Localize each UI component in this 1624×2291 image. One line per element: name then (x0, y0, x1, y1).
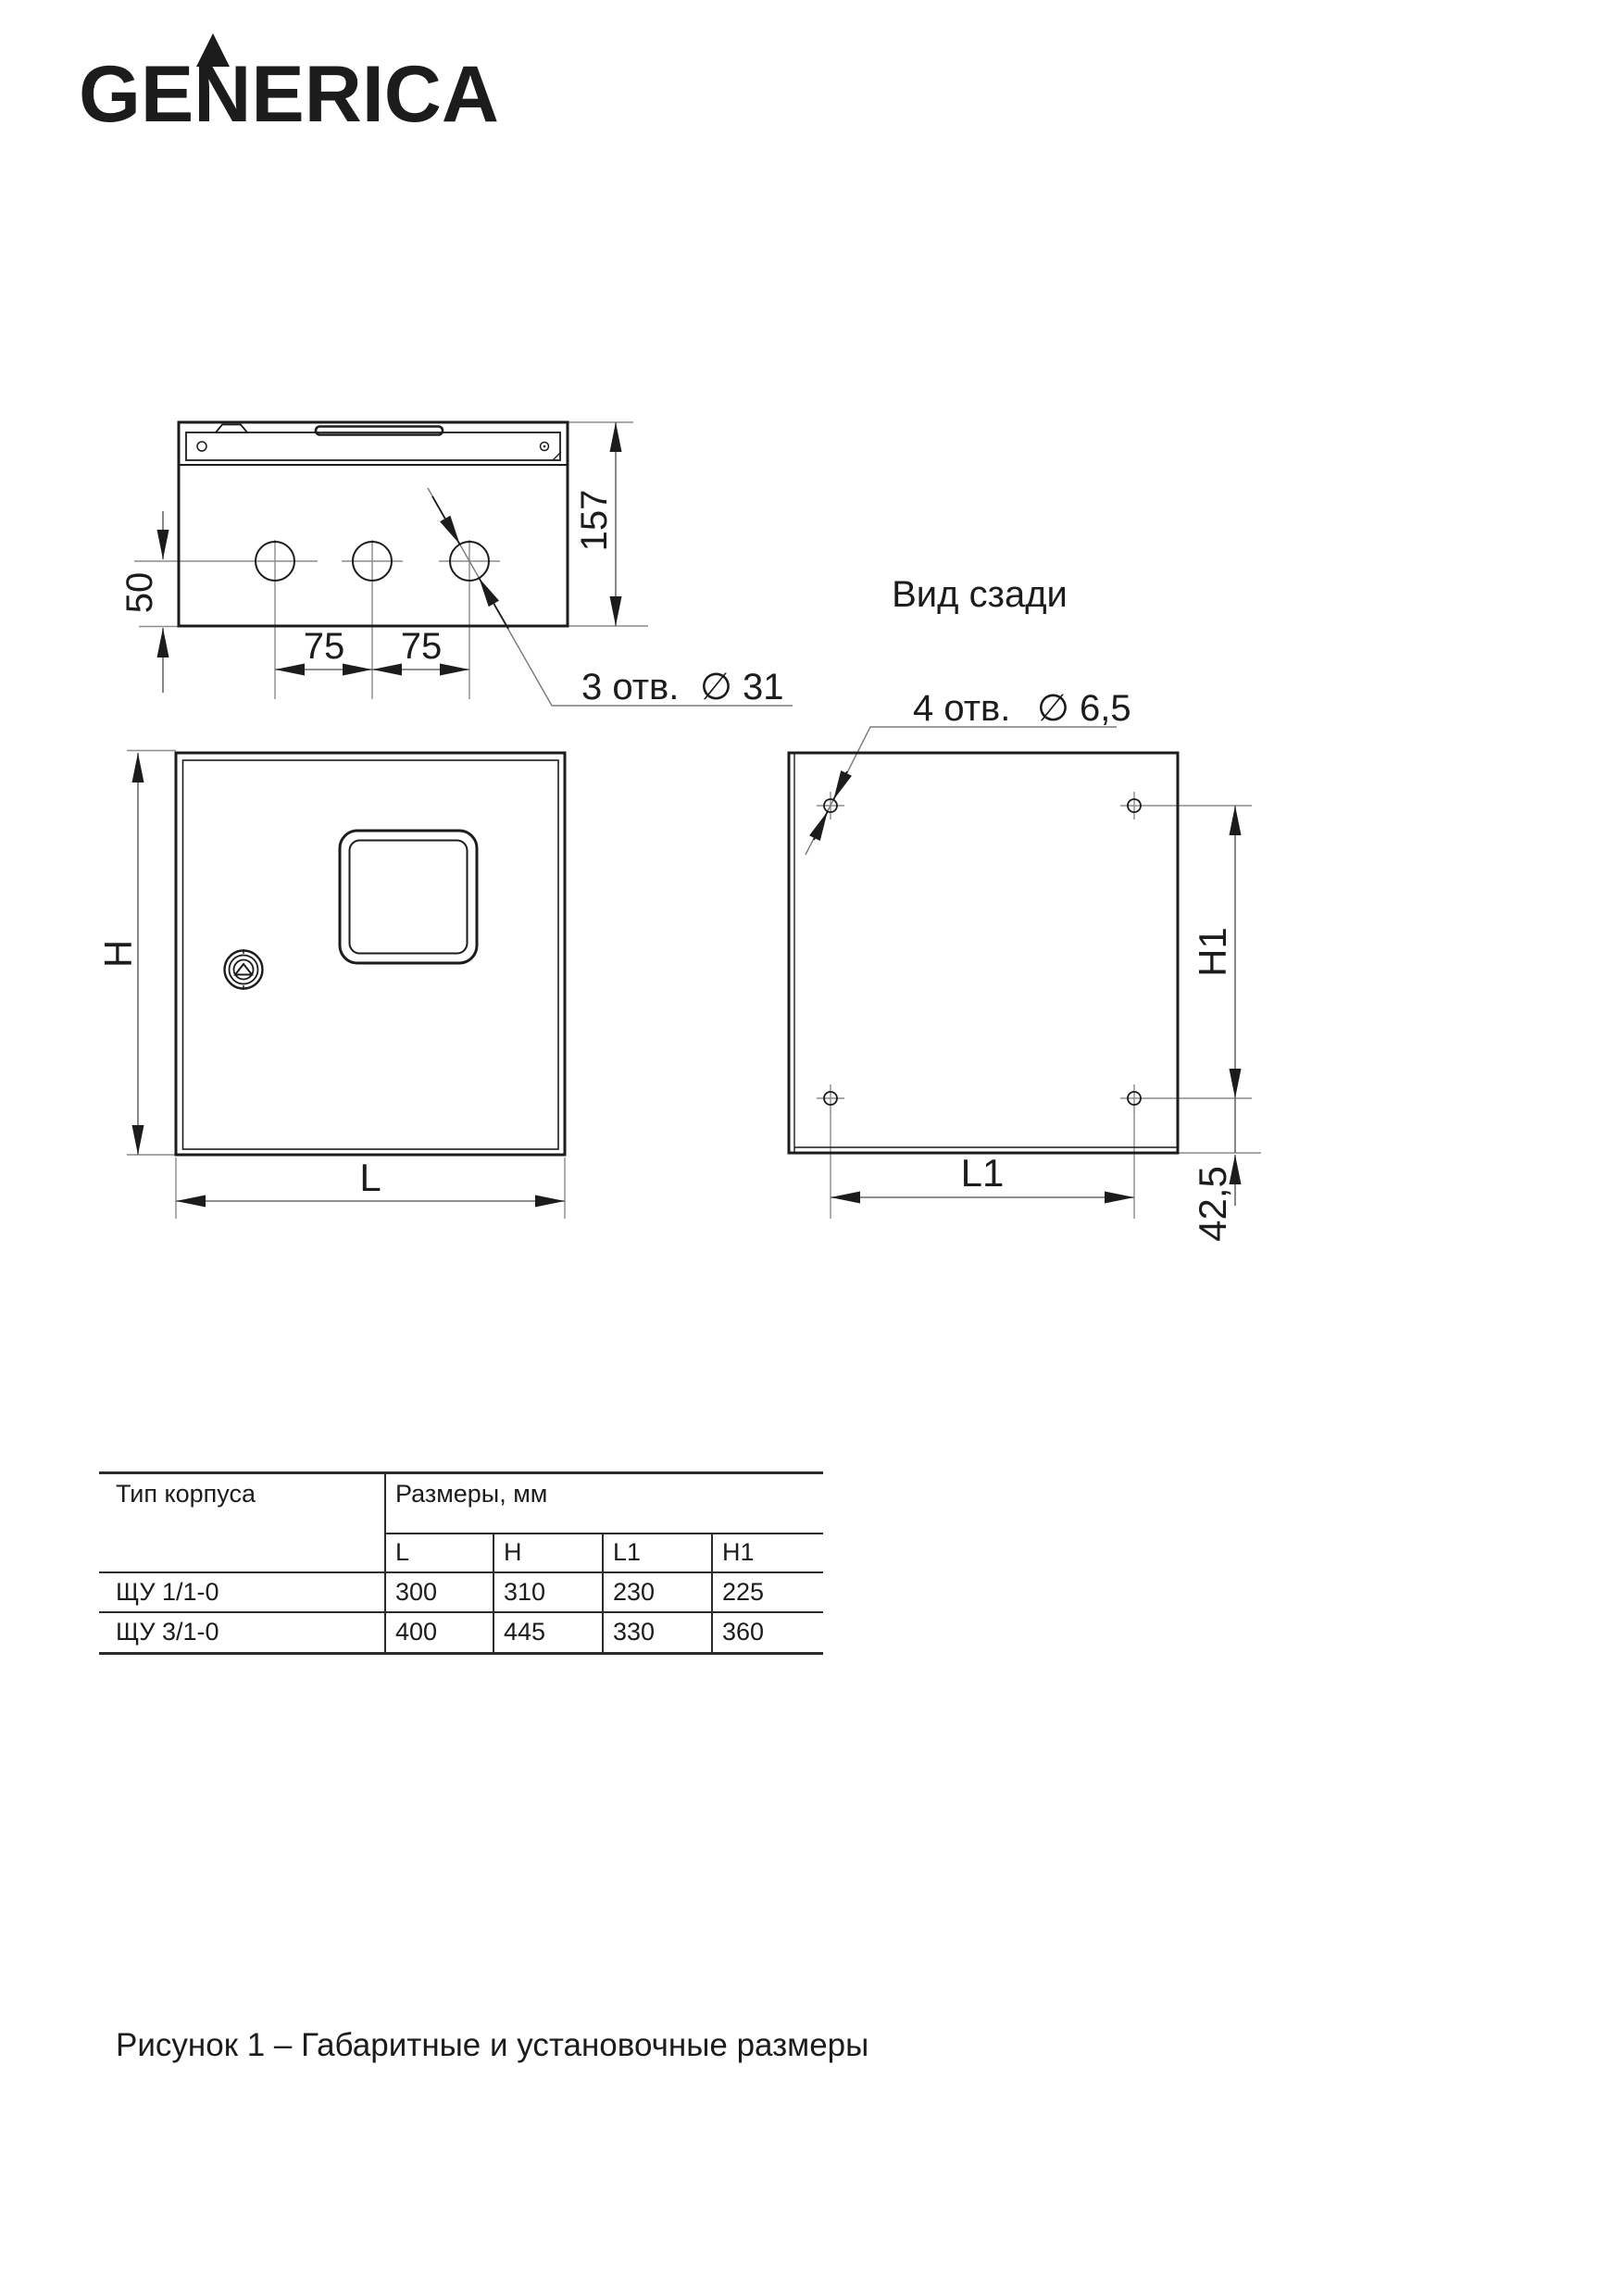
row-value-L: 300 (395, 1578, 437, 1607)
holes-note-3: 3 отв. (581, 667, 679, 707)
back-view: Вид сзади (789, 574, 1261, 1242)
page: { "logo": { "text": "GENERICA" }, "top_v… (0, 0, 1624, 2291)
table-border (99, 1652, 823, 1655)
brand-logo: GENERICA (79, 33, 499, 139)
dim-label-75-second: 75 (401, 626, 443, 667)
dim-label-42-5: 42,5 (1191, 1166, 1234, 1242)
table-col-H: H (504, 1538, 522, 1567)
dimensions-table: Тип корпуса Размеры, мм L H L1 H1 ЩУ 1/1… (99, 1471, 823, 1655)
meter-window-inner (350, 841, 468, 954)
row-value-H: 445 (504, 1618, 545, 1646)
top-view: 157 50 75 75 3 отв. ∅ 31 (119, 422, 793, 707)
row-value-H1: 225 (722, 1578, 764, 1607)
front-view-dimension-lines (138, 753, 565, 1201)
row-value-H: 310 (504, 1578, 545, 1607)
front-view: H L (96, 751, 565, 1220)
door-lock (225, 949, 263, 990)
top-view-outline (179, 422, 568, 626)
back-view-extension-lines (817, 792, 1261, 1219)
row-value-L: 400 (395, 1618, 437, 1646)
dim-label-L1: L1 (961, 1151, 1005, 1195)
table-border (384, 1471, 386, 1655)
table-border (384, 1533, 823, 1534)
technical-drawing: GENERICA (0, 0, 1624, 2291)
figure-caption: Рисунок 1 – Габаритные и установочные ра… (116, 2027, 868, 2064)
row-value-H1: 360 (722, 1618, 764, 1646)
holes-dia-65: ∅ 6,5 (1037, 688, 1131, 729)
table-header-type: Тип корпуса (116, 1480, 256, 1509)
dim-label-H: H (96, 940, 140, 968)
back-view-outline (789, 753, 1178, 1153)
table-border (602, 1533, 604, 1655)
door-panel (183, 760, 559, 1149)
back-view-title: Вид сзади (892, 574, 1068, 615)
holes-dia-31: ∅ 31 (700, 667, 783, 707)
table-col-L1: L1 (613, 1538, 641, 1567)
meter-window-outer (340, 831, 477, 963)
dim-label-75-first: 75 (304, 626, 345, 667)
dim-label-50: 50 (119, 572, 160, 614)
row-type: ЩУ 1/1-0 (116, 1578, 219, 1607)
back-view-dimension-lines (831, 806, 1235, 1206)
table-border (711, 1533, 713, 1655)
row-value-L1: 330 (613, 1618, 655, 1646)
dim-label-H1: H1 (1191, 927, 1234, 977)
table-border (493, 1533, 494, 1655)
back-view-leader-line (806, 727, 1117, 855)
front-view-outline (176, 753, 565, 1155)
table-border (99, 1611, 823, 1613)
table-border (99, 1471, 823, 1474)
front-view-extension-lines (127, 751, 565, 1220)
dim-label-157: 157 (574, 490, 615, 552)
brand-logo-text: GENERICA (79, 50, 499, 139)
row-value-L1: 230 (613, 1578, 655, 1607)
row-type: ЩУ 3/1-0 (116, 1618, 219, 1646)
table-col-L: L (395, 1538, 409, 1567)
dim-label-L: L (359, 1156, 381, 1199)
table-border (99, 1571, 823, 1573)
table-col-H1: H1 (722, 1538, 755, 1567)
holes-note-4: 4 отв. (913, 688, 1010, 729)
table-header-dims: Размеры, мм (395, 1480, 547, 1509)
